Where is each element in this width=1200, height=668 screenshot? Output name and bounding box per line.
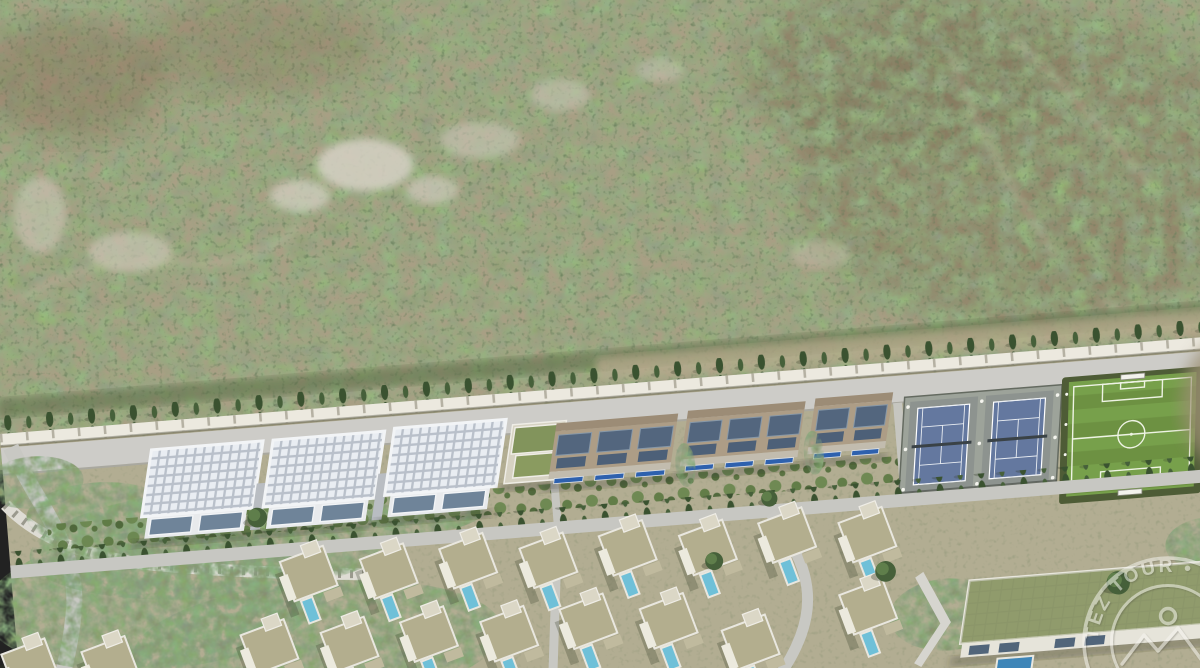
- window: [854, 405, 888, 428]
- glass-bay: [442, 490, 486, 510]
- glass: [998, 642, 1019, 653]
- window: [816, 408, 850, 431]
- glass: [968, 644, 989, 655]
- clearing: [406, 176, 458, 204]
- glass-bay: [320, 502, 364, 522]
- window: [638, 426, 674, 449]
- residence-block-1: [540, 413, 682, 493]
- pavilion-3: [374, 419, 506, 527]
- window: [767, 414, 802, 437]
- clearing: [636, 58, 684, 82]
- masterplan-rendering: TEZ TOUR • TEZ TOUR • TEZ TOUR •: [0, 0, 1200, 668]
- clearing: [317, 139, 413, 191]
- glass-bay: [392, 494, 436, 514]
- solar-lattice-roof: [263, 431, 385, 507]
- window: [687, 420, 722, 443]
- rendering-canvas: TEZ TOUR • TEZ TOUR • TEZ TOUR •: [0, 0, 1200, 668]
- window: [727, 417, 762, 440]
- pavilion-2: [253, 431, 385, 539]
- glass: [1054, 637, 1075, 648]
- glass-bay: [199, 512, 243, 532]
- glass-bay: [270, 506, 314, 526]
- spa-pool: [995, 656, 1034, 668]
- clearing: [790, 241, 850, 269]
- window: [597, 429, 633, 452]
- clearing: [14, 177, 66, 253]
- solar-lattice-roof: [385, 419, 507, 495]
- green-roof-lower: [513, 453, 554, 478]
- clearing: [440, 122, 520, 158]
- clearing: [270, 180, 330, 212]
- pavilion-1: [131, 441, 263, 549]
- window: [556, 433, 592, 456]
- clearing: [530, 79, 590, 111]
- glass-bay: [149, 516, 193, 536]
- solar-lattice-roof: [142, 441, 264, 517]
